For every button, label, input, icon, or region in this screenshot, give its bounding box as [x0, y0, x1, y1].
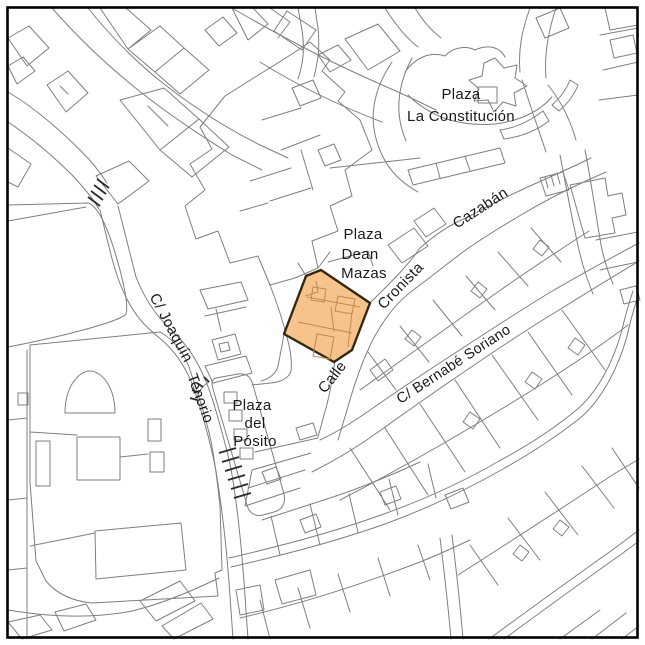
label-street-joaquin: C/ Joaquín — [146, 291, 196, 366]
street-joaquin-tenorio-edges — [100, 206, 248, 639]
label-plaza-dean-line3: Mazas — [341, 265, 387, 282]
label-plaza-posito-line2: del — [245, 415, 266, 432]
label-plaza-dean-line2: Dean — [341, 246, 378, 263]
street-right-and-alleys — [229, 150, 639, 639]
highlighted-parcel-outline[interactable] — [284, 270, 370, 362]
label-plaza-posito-line3: Pósito — [233, 433, 277, 450]
stairs-hatch-top-left — [88, 179, 109, 206]
highlighted-building[interactable] — [284, 270, 370, 362]
posito-block-and-lane — [197, 263, 306, 516]
map-canvas[interactable]: Plaza La Constitución Plaza Dean Mazas C… — [0, 0, 645, 645]
label-street-bernabe-soriano: C/ Bernabé Soriano — [394, 322, 514, 408]
label-street-calle: Calle — [315, 358, 350, 397]
parcels-street-wedge — [360, 228, 589, 390]
label-plaza-constitucion-line1: Plaza — [441, 86, 480, 103]
label-street-cazaban: Cazabán — [450, 184, 511, 232]
roads-top-left — [8, 8, 436, 209]
parcels-bottom-center — [236, 423, 470, 639]
label-plaza-dean-line1: Plaza — [343, 226, 382, 243]
label-plaza-constitucion-line2: La Constitución — [407, 108, 515, 125]
label-plaza-posito-line1: Plaza — [232, 397, 271, 414]
map-labels: Plaza La Constitución Plaza Dean Mazas C… — [146, 86, 515, 450]
central-block — [185, 8, 372, 285]
street-map-svg: Plaza La Constitución Plaza Dean Mazas C… — [0, 0, 645, 645]
